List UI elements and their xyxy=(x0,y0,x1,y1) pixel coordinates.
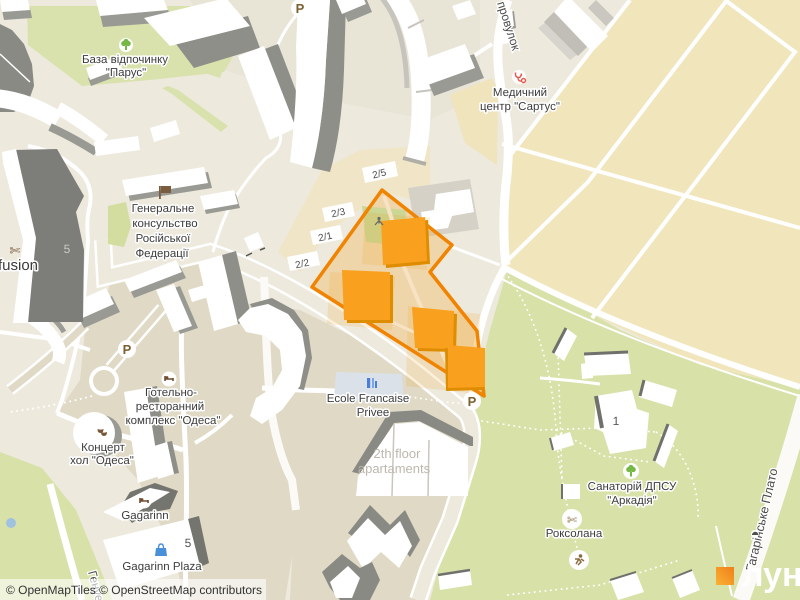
svg-text:ресторанний: ресторанний xyxy=(136,401,204,413)
svg-text:Концерт: Концерт xyxy=(81,442,125,454)
svg-text:apartaments: apartaments xyxy=(358,461,431,476)
svg-text:Gagarinn Plaza: Gagarinn Plaza xyxy=(122,561,202,573)
svg-text:✄: ✄ xyxy=(567,513,577,527)
svg-text:База відпочинку: База відпочинку xyxy=(82,54,168,66)
svg-text:P: P xyxy=(296,1,305,16)
svg-text:"Аркадія": "Аркадія" xyxy=(607,495,656,507)
svg-text:P: P xyxy=(468,394,477,409)
svg-text:Медичний: Медичний xyxy=(493,87,547,99)
svg-text:2th floor: 2th floor xyxy=(374,446,422,461)
svg-text:P: P xyxy=(123,342,132,357)
svg-text:Російської: Російської xyxy=(136,233,192,245)
svg-text:Санаторій ДПСУ: Санаторій ДПСУ xyxy=(588,481,677,493)
svg-text:Готельно-: Готельно- xyxy=(145,387,197,399)
svg-text:"Парус": "Парус" xyxy=(106,67,146,79)
svg-text:Федерації: Федерації xyxy=(135,248,189,260)
svg-text:© OpenMapTiles © OpenStreetMap: © OpenMapTiles © OpenStreetMap contribut… xyxy=(6,583,262,597)
svg-text:✄: ✄ xyxy=(10,243,21,258)
svg-text:Ecole Francaise: Ecole Francaise xyxy=(327,393,409,405)
svg-text:5: 5 xyxy=(64,242,71,256)
svg-text:хол "Одеса": хол "Одеса" xyxy=(70,455,134,467)
svg-text:лун: лун xyxy=(742,556,800,594)
svg-text:fusion: fusion xyxy=(0,257,38,274)
svg-text:центр "Сартус": центр "Сартус" xyxy=(480,101,560,113)
svg-text:Gagarinn: Gagarinn xyxy=(121,510,168,522)
svg-text:Роксолана: Роксолана xyxy=(546,528,603,540)
svg-text:комплекс "Одеса": комплекс "Одеса" xyxy=(125,415,220,427)
svg-text:Генеральне: Генеральне xyxy=(132,203,195,215)
svg-text:5: 5 xyxy=(185,536,192,550)
svg-text:1: 1 xyxy=(613,414,620,428)
svg-text:Privee: Privee xyxy=(357,407,390,419)
svg-text:консульство: консульство xyxy=(132,218,197,230)
